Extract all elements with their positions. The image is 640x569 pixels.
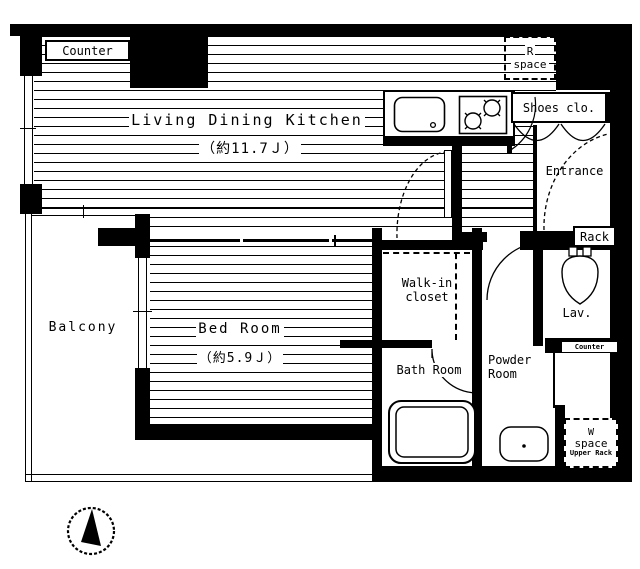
balcony-edge-line — [31, 213, 32, 481]
balcony-label: Balcony — [33, 320, 133, 336]
lav-counter-box: Counter — [561, 341, 618, 353]
walk-in-closet-label: Walk-in closet — [385, 276, 469, 305]
bedroom-label: Bed Room — [170, 321, 310, 338]
stove-icon — [458, 95, 508, 135]
toilet-icon — [554, 246, 606, 306]
ldk-size-label: （約11.7Ｊ） — [170, 141, 330, 158]
balcony-edge-line — [25, 474, 378, 475]
wall — [20, 184, 42, 214]
hall-floor — [135, 208, 556, 232]
powder-room-door-arc — [487, 242, 547, 302]
compass-icon — [64, 504, 118, 558]
kitchen-counter-label: Counter — [62, 44, 113, 58]
sink-icon — [393, 96, 447, 134]
balcony-area — [26, 214, 135, 481]
wall — [20, 24, 42, 76]
wall — [372, 466, 632, 482]
wall-pillar — [130, 36, 208, 88]
window-line — [24, 76, 25, 184]
bath-room-label: Bath Room — [384, 363, 474, 377]
r-space-line1: R — [525, 45, 536, 58]
window-line — [32, 76, 33, 184]
wall — [10, 24, 558, 36]
wall — [98, 228, 138, 246]
window-tick — [83, 205, 84, 218]
partition-tick — [334, 235, 336, 246]
kitchen-counter-box: Counter — [45, 40, 130, 61]
window-line — [146, 258, 147, 368]
balcony-edge-line — [25, 213, 26, 481]
lavatory-label: Lav. — [549, 306, 605, 320]
wall — [382, 340, 432, 348]
lav-counter-label: Counter — [575, 343, 605, 351]
wall — [138, 424, 378, 440]
wall — [556, 24, 632, 90]
wall — [340, 340, 382, 348]
wall — [452, 140, 462, 242]
ldk-door-leaf — [444, 150, 452, 218]
partition-line — [150, 239, 240, 242]
bedroom-size-label: （約5.9Ｊ） — [160, 351, 320, 367]
ldk-label: Living Dining Kitchen — [112, 111, 382, 129]
w-space-line3: Upper Rack — [570, 450, 612, 458]
bathtub-icon — [387, 399, 477, 465]
partition-line — [243, 239, 329, 242]
window-line — [138, 258, 139, 368]
window-tick — [20, 128, 36, 129]
washer-space: W space Upper Rack — [564, 418, 618, 468]
balcony-edge-line — [25, 481, 378, 482]
powder-room-label: Powder Room — [488, 353, 552, 382]
wall — [607, 92, 612, 123]
floor-plan: Counter Shoes clo. Rack Counter R space … — [0, 0, 640, 569]
refrigerator-space: R space — [504, 36, 556, 80]
window-tick — [133, 311, 152, 312]
partition-line — [332, 239, 372, 242]
hall-door-arc — [505, 95, 537, 155]
r-space-line2: space — [511, 58, 548, 71]
wall — [553, 353, 555, 408]
washbasin-icon — [495, 423, 553, 465]
entrance-label: Entrance — [539, 164, 610, 178]
wall — [452, 232, 487, 242]
